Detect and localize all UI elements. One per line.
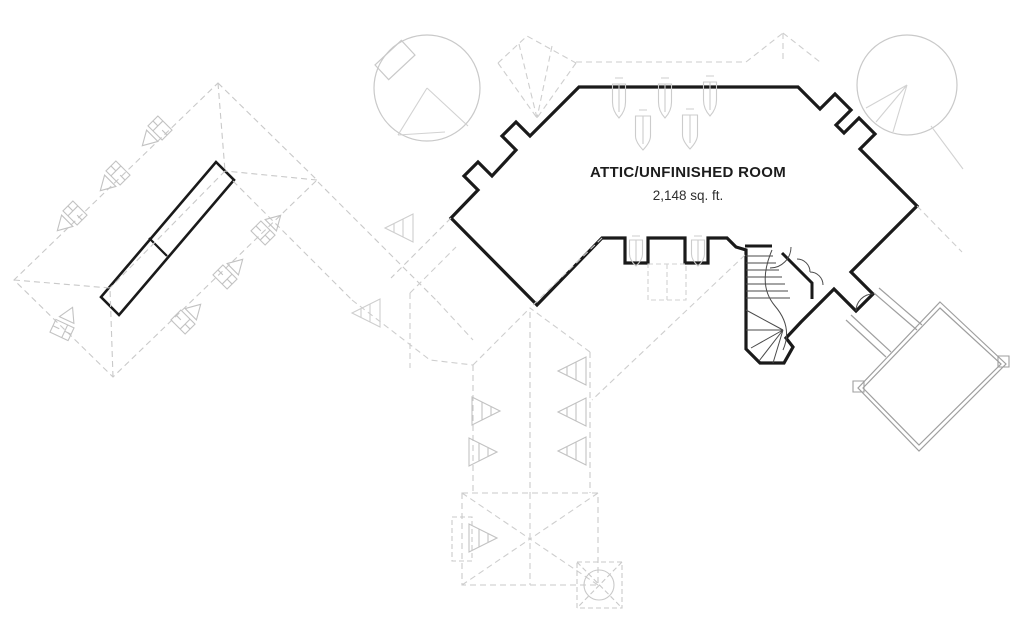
connector-eave-lines [233,181,451,301]
roof-vent-5 [213,252,250,289]
ridge-skylight-divider [149,238,167,256]
roof-vent-3 [50,201,87,238]
turret-gable-fan [498,36,576,118]
room-title: ATTIC/UNFINISHED ROOM [553,164,823,181]
attic-window-3 [704,76,717,116]
breezeway-walls [846,288,922,357]
attic-window-1 [613,78,626,118]
roof-vent-7 [50,303,82,340]
stair-door-swing-arc [770,247,791,268]
attic-window-5 [683,109,698,149]
room-area-label: 2,148 sq. ft. [553,188,823,203]
central-roof-valleys [352,206,962,400]
notch-skylight-box [648,264,686,300]
gable-vent-tree-5 [558,437,586,465]
turret-left-lines [398,88,468,135]
garage-wall-inner [863,308,1001,445]
attic-window-4 [636,110,651,150]
roof-vent-1 [135,116,172,153]
bottom-roof-hips [462,493,598,585]
attic-window-2 [659,78,672,118]
gable-vent-tree-7 [385,214,413,242]
gable-vent-tree-4 [558,398,586,426]
roof-vent-2 [93,161,130,198]
floor-plan-canvas: ATTIC/UNFINISHED ROOM 2,148 sq. ft. [0,0,1025,641]
gable-vent-tree-1 [472,397,500,425]
turret-left-dormer [375,40,415,79]
gable-vent-tree-2 [469,438,497,466]
gable-vent-tree-3 [558,357,586,385]
gable-vent-tree-6 [469,524,497,552]
stair-winder-curb [765,250,786,350]
floor-plan-svg [0,0,1025,641]
top-eave-lines [576,33,820,62]
garage-wall-outer [858,302,1006,451]
